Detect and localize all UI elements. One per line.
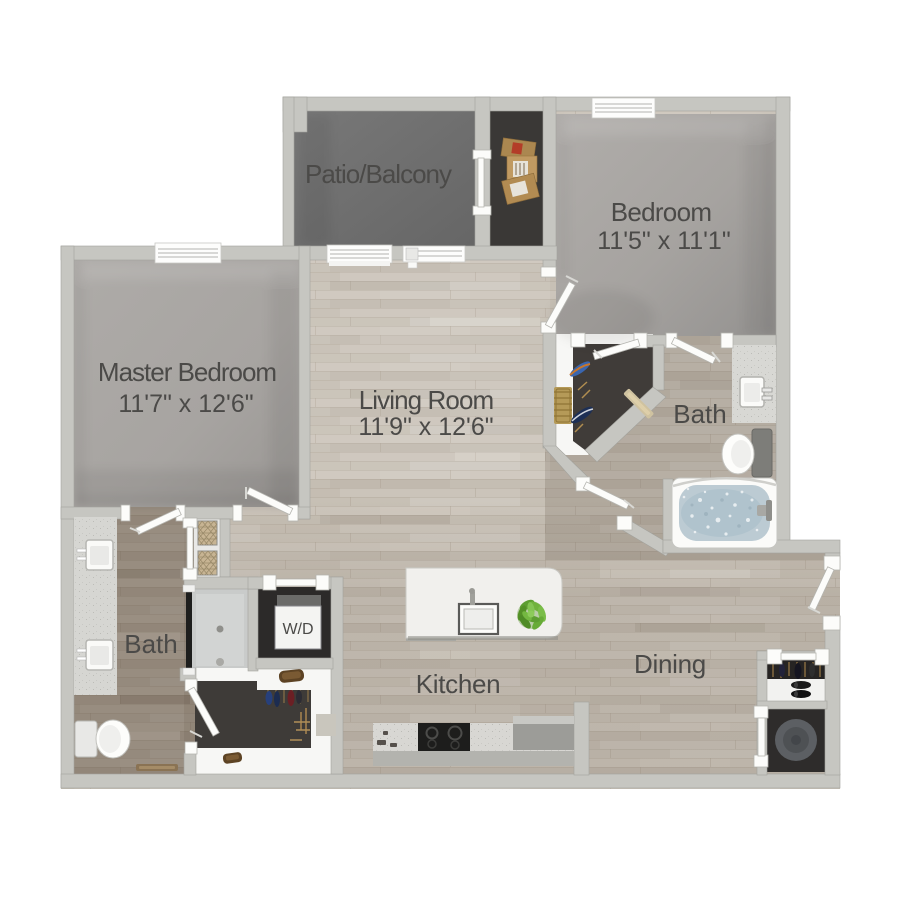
svg-text:11'5" x 11'1": 11'5" x 11'1"	[597, 227, 730, 255]
svg-text:Bath: Bath	[124, 629, 178, 659]
svg-text:Dining: Dining	[634, 649, 706, 679]
svg-text:11'7" x 12'6": 11'7" x 12'6"	[118, 390, 253, 418]
svg-text:W/D: W/D	[282, 621, 313, 638]
svg-text:Kitchen: Kitchen	[416, 669, 501, 699]
svg-text:11'9" x 12'6": 11'9" x 12'6"	[358, 413, 493, 441]
svg-text:Living Room: Living Room	[359, 385, 494, 415]
svg-text:Patio/Balcony: Patio/Balcony	[305, 159, 452, 189]
svg-text:Bath: Bath	[673, 399, 727, 429]
svg-text:Bedroom: Bedroom	[611, 197, 712, 227]
svg-text:Master Bedroom: Master Bedroom	[98, 357, 276, 387]
